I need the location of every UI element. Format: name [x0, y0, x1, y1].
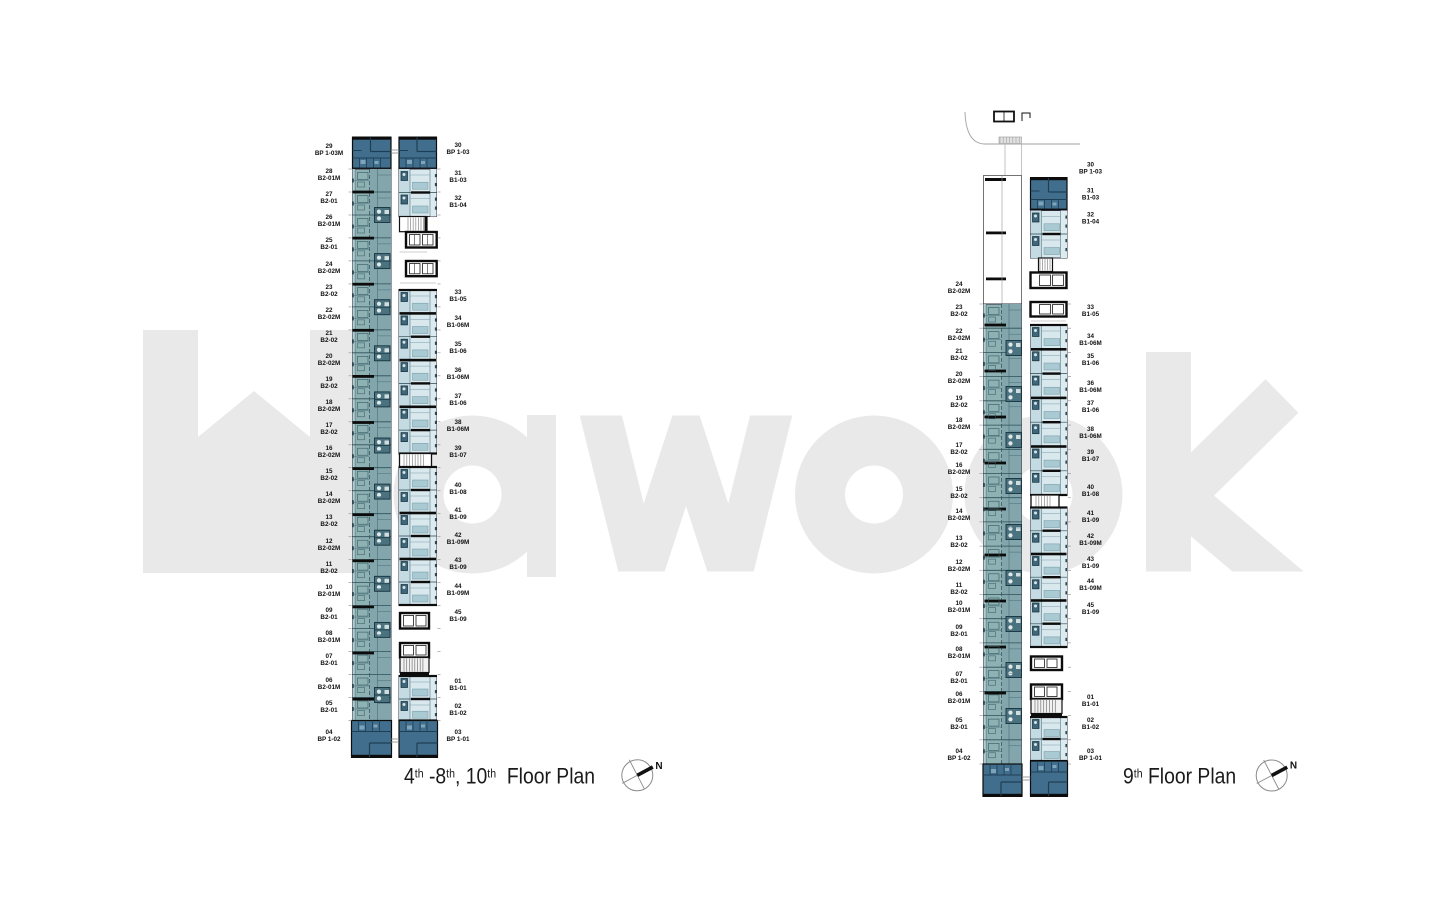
svg-text:B2-02: B2-02: [950, 542, 968, 549]
svg-text:11: 11: [956, 582, 963, 589]
svg-text:B2-02: B2-02: [950, 355, 968, 362]
svg-text:41: 41: [454, 507, 462, 514]
svg-text:BP 1-03M: BP 1-03M: [315, 150, 343, 157]
svg-text:4th -8th, 10th Floor Plan: 4th -8th, 10th Floor Plan: [404, 764, 595, 788]
svg-text:B1-09: B1-09: [1082, 517, 1100, 524]
svg-text:27: 27: [325, 191, 333, 198]
svg-text:13: 13: [955, 535, 963, 542]
svg-text:15: 15: [955, 486, 963, 493]
svg-text:12: 12: [955, 559, 963, 566]
svg-text:B2-02: B2-02: [320, 291, 338, 298]
svg-text:B1-03: B1-03: [449, 177, 467, 184]
svg-text:B1-06: B1-06: [1082, 360, 1100, 367]
svg-text:BP 1-03: BP 1-03: [447, 149, 470, 156]
svg-text:B1-08: B1-08: [449, 489, 467, 496]
svg-text:B1-06M: B1-06M: [447, 322, 469, 329]
svg-text:B2-01: B2-01: [320, 198, 338, 205]
svg-text:B2-02M: B2-02M: [948, 515, 970, 522]
svg-text:B1-09M: B1-09M: [447, 590, 469, 597]
svg-text:B2-02: B2-02: [320, 521, 338, 528]
svg-text:B2-01M: B2-01M: [318, 637, 340, 644]
svg-text:B1-01: B1-01: [449, 685, 467, 692]
svg-text:28: 28: [325, 168, 333, 175]
svg-text:B2-02: B2-02: [950, 493, 968, 500]
svg-text:10: 10: [955, 600, 963, 607]
svg-text:02: 02: [1087, 717, 1095, 724]
svg-text:BP 1-01: BP 1-01: [1079, 755, 1102, 762]
svg-text:B1-04: B1-04: [449, 202, 467, 209]
svg-text:11: 11: [326, 561, 333, 568]
svg-text:30: 30: [1087, 162, 1095, 169]
svg-text:24: 24: [325, 261, 333, 268]
svg-text:B1-05: B1-05: [449, 296, 467, 303]
svg-text:B2-01M: B2-01M: [318, 175, 340, 182]
svg-text:B2-02M: B2-02M: [318, 452, 340, 459]
svg-text:08: 08: [325, 630, 333, 637]
svg-text:B1-02: B1-02: [449, 710, 467, 717]
svg-text:B2-02: B2-02: [320, 383, 338, 390]
svg-text:05: 05: [325, 700, 333, 707]
svg-text:30: 30: [454, 142, 462, 149]
svg-text:16: 16: [325, 445, 333, 452]
svg-text:34: 34: [1087, 333, 1095, 340]
svg-text:B2-01: B2-01: [950, 724, 968, 731]
svg-text:BP 1-02: BP 1-02: [318, 736, 341, 743]
svg-text:BP 1-01: BP 1-01: [447, 736, 470, 743]
svg-text:32: 32: [1087, 212, 1095, 219]
svg-text:39: 39: [454, 445, 462, 452]
svg-text:06: 06: [325, 677, 333, 684]
svg-text:B2-02: B2-02: [950, 589, 968, 596]
svg-text:21: 21: [325, 330, 333, 337]
svg-text:44: 44: [1087, 578, 1095, 585]
svg-text:B2-02M: B2-02M: [948, 469, 970, 476]
svg-text:B2-02M: B2-02M: [948, 288, 970, 295]
svg-text:45: 45: [454, 609, 462, 616]
svg-text:B2-02: B2-02: [320, 337, 338, 344]
svg-text:04: 04: [325, 729, 333, 736]
svg-text:B1-07: B1-07: [1082, 456, 1100, 463]
svg-text:B2-01: B2-01: [320, 707, 338, 714]
svg-text:B2-02M: B2-02M: [948, 424, 970, 431]
svg-text:03: 03: [454, 729, 462, 736]
svg-text:38: 38: [454, 419, 462, 426]
svg-text:B2-02M: B2-02M: [948, 566, 970, 573]
svg-text:31: 31: [454, 170, 462, 177]
svg-text:45: 45: [1087, 602, 1095, 609]
svg-text:B1-06M: B1-06M: [1079, 387, 1101, 394]
svg-text:B2-02: B2-02: [320, 568, 338, 575]
svg-text:B2-01M: B2-01M: [948, 607, 970, 614]
svg-text:B1-09: B1-09: [449, 514, 467, 521]
svg-text:26: 26: [325, 214, 333, 221]
svg-text:41: 41: [1087, 510, 1095, 517]
svg-text:16: 16: [955, 462, 963, 469]
svg-text:BP 1-02: BP 1-02: [948, 755, 971, 762]
svg-text:02: 02: [454, 703, 462, 710]
svg-text:N: N: [1290, 761, 1297, 772]
svg-text:42: 42: [1087, 533, 1095, 540]
svg-text:B2-02: B2-02: [320, 475, 338, 482]
svg-text:32: 32: [454, 195, 462, 202]
svg-text:B2-01: B2-01: [320, 614, 338, 621]
svg-text:33: 33: [454, 289, 462, 296]
svg-text:B1-09M: B1-09M: [447, 539, 469, 546]
svg-text:B1-06: B1-06: [1082, 407, 1100, 414]
svg-text:B1-02: B1-02: [1082, 724, 1100, 731]
svg-text:13: 13: [325, 514, 333, 521]
svg-text:43: 43: [454, 557, 462, 564]
svg-text:37: 37: [454, 393, 462, 400]
svg-text:09: 09: [325, 607, 333, 614]
svg-text:40: 40: [1087, 484, 1095, 491]
svg-text:B2-02: B2-02: [950, 311, 968, 318]
svg-text:B2-02M: B2-02M: [318, 498, 340, 505]
svg-text:01: 01: [1087, 694, 1095, 701]
svg-text:18: 18: [955, 417, 963, 424]
svg-text:B2-01: B2-01: [950, 631, 968, 638]
svg-text:35: 35: [1087, 353, 1095, 360]
svg-text:09: 09: [955, 624, 963, 631]
svg-text:17: 17: [325, 422, 333, 429]
svg-text:B2-02M: B2-02M: [318, 406, 340, 413]
svg-text:B2-01: B2-01: [320, 244, 338, 251]
svg-text:BP 1-03: BP 1-03: [1079, 169, 1102, 176]
svg-text:B1-04: B1-04: [1082, 219, 1100, 226]
svg-text:03: 03: [1087, 748, 1095, 755]
svg-text:B1-09M: B1-09M: [1079, 540, 1101, 547]
svg-text:36: 36: [454, 367, 462, 374]
svg-text:07: 07: [955, 671, 963, 678]
svg-text:22: 22: [325, 307, 333, 314]
svg-text:B1-03: B1-03: [1082, 195, 1100, 202]
svg-text:B1-06: B1-06: [449, 400, 467, 407]
svg-text:B2-01M: B2-01M: [948, 653, 970, 660]
svg-text:12: 12: [325, 538, 333, 545]
svg-text:B2-02M: B2-02M: [318, 268, 340, 275]
svg-text:N: N: [655, 761, 662, 772]
svg-text:B1-09M: B1-09M: [1079, 585, 1101, 592]
svg-text:04: 04: [955, 748, 963, 755]
svg-text:34: 34: [454, 315, 462, 322]
svg-text:08: 08: [955, 646, 963, 653]
svg-text:B2-01M: B2-01M: [948, 698, 970, 705]
svg-text:B1-06M: B1-06M: [1079, 433, 1101, 440]
svg-text:06: 06: [955, 691, 963, 698]
svg-text:20: 20: [325, 353, 333, 360]
svg-text:B2-01: B2-01: [320, 660, 338, 667]
svg-text:B2-02M: B2-02M: [948, 378, 970, 385]
svg-text:B1-06: B1-06: [449, 348, 467, 355]
svg-text:B1-05: B1-05: [1082, 311, 1100, 318]
svg-text:B1-06M: B1-06M: [447, 426, 469, 433]
svg-text:B1-07: B1-07: [449, 452, 467, 459]
svg-text:B1-09: B1-09: [1082, 609, 1100, 616]
svg-text:29: 29: [325, 143, 333, 150]
svg-text:B2-01M: B2-01M: [318, 591, 340, 598]
svg-text:B1-06M: B1-06M: [1079, 340, 1101, 347]
svg-text:B2-02: B2-02: [320, 429, 338, 436]
svg-text:31: 31: [1087, 188, 1095, 195]
svg-text:43: 43: [1087, 556, 1095, 563]
svg-text:B1-08: B1-08: [1082, 491, 1100, 498]
svg-text:B2-02M: B2-02M: [318, 314, 340, 321]
svg-text:23: 23: [325, 284, 333, 291]
svg-text:20: 20: [955, 371, 963, 378]
svg-text:37: 37: [1087, 400, 1095, 407]
svg-text:B2-01: B2-01: [950, 678, 968, 685]
svg-text:23: 23: [955, 304, 963, 311]
svg-text:19: 19: [955, 395, 963, 402]
svg-text:21: 21: [955, 348, 963, 355]
svg-text:35: 35: [454, 341, 462, 348]
svg-text:22: 22: [955, 328, 963, 335]
svg-text:B2-01M: B2-01M: [318, 684, 340, 691]
svg-text:B2-02: B2-02: [950, 402, 968, 409]
svg-text:19: 19: [325, 376, 333, 383]
svg-text:44: 44: [454, 583, 462, 590]
svg-text:10: 10: [325, 584, 333, 591]
svg-text:24: 24: [955, 281, 963, 288]
svg-text:B2-02M: B2-02M: [318, 360, 340, 367]
svg-text:B1-09: B1-09: [1082, 563, 1100, 570]
svg-text:33: 33: [1087, 304, 1095, 311]
svg-text:17: 17: [955, 442, 963, 449]
svg-text:B1-01: B1-01: [1082, 701, 1100, 708]
svg-text:14: 14: [955, 508, 963, 515]
svg-text:B2-02M: B2-02M: [318, 545, 340, 552]
svg-text:18: 18: [325, 399, 333, 406]
svg-text:B1-09: B1-09: [449, 564, 467, 571]
svg-text:25: 25: [325, 237, 333, 244]
svg-text:01: 01: [454, 678, 462, 685]
svg-text:38: 38: [1087, 426, 1095, 433]
svg-text:B1-09: B1-09: [449, 616, 467, 623]
svg-text:05: 05: [955, 717, 963, 724]
svg-text:14: 14: [325, 491, 333, 498]
svg-text:B2-02: B2-02: [950, 449, 968, 456]
svg-text:40: 40: [454, 482, 462, 489]
svg-text:36: 36: [1087, 380, 1095, 387]
svg-text:B1-06M: B1-06M: [447, 374, 469, 381]
svg-text:07: 07: [325, 653, 333, 660]
svg-text:42: 42: [454, 532, 462, 539]
svg-text:39: 39: [1087, 449, 1095, 456]
svg-text:15: 15: [325, 468, 333, 475]
svg-text:B2-01M: B2-01M: [318, 221, 340, 228]
svg-text:B2-02M: B2-02M: [948, 335, 970, 342]
